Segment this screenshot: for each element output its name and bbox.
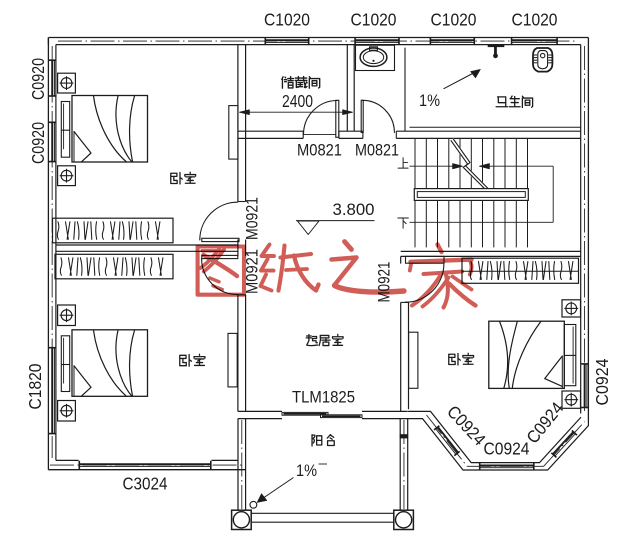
svg-text:C1020: C1020: [512, 10, 558, 30]
svg-text:C1020: C1020: [431, 10, 477, 30]
svg-text:TLM1825: TLM1825: [292, 388, 355, 407]
svg-text:C1820: C1820: [25, 363, 45, 409]
svg-text:M0821: M0821: [297, 140, 342, 159]
svg-text:C0924: C0924: [592, 358, 612, 405]
svg-text:C0920: C0920: [28, 122, 48, 164]
svg-text:M0921: M0921: [375, 262, 394, 303]
svg-text:C1020: C1020: [351, 10, 397, 30]
svg-text:C0920: C0920: [28, 58, 48, 100]
svg-text:M0921: M0921: [243, 197, 262, 240]
svg-text:C0924: C0924: [484, 439, 530, 459]
svg-text:3.800: 3.800: [333, 200, 375, 219]
svg-text:2400: 2400: [282, 91, 313, 111]
svg-text:1%: 1%: [296, 461, 317, 480]
svg-text:C3024: C3024: [123, 474, 168, 494]
svg-text:C1020: C1020: [264, 10, 310, 30]
svg-text:1%: 1%: [419, 91, 440, 110]
svg-text:M0821: M0821: [355, 140, 399, 159]
